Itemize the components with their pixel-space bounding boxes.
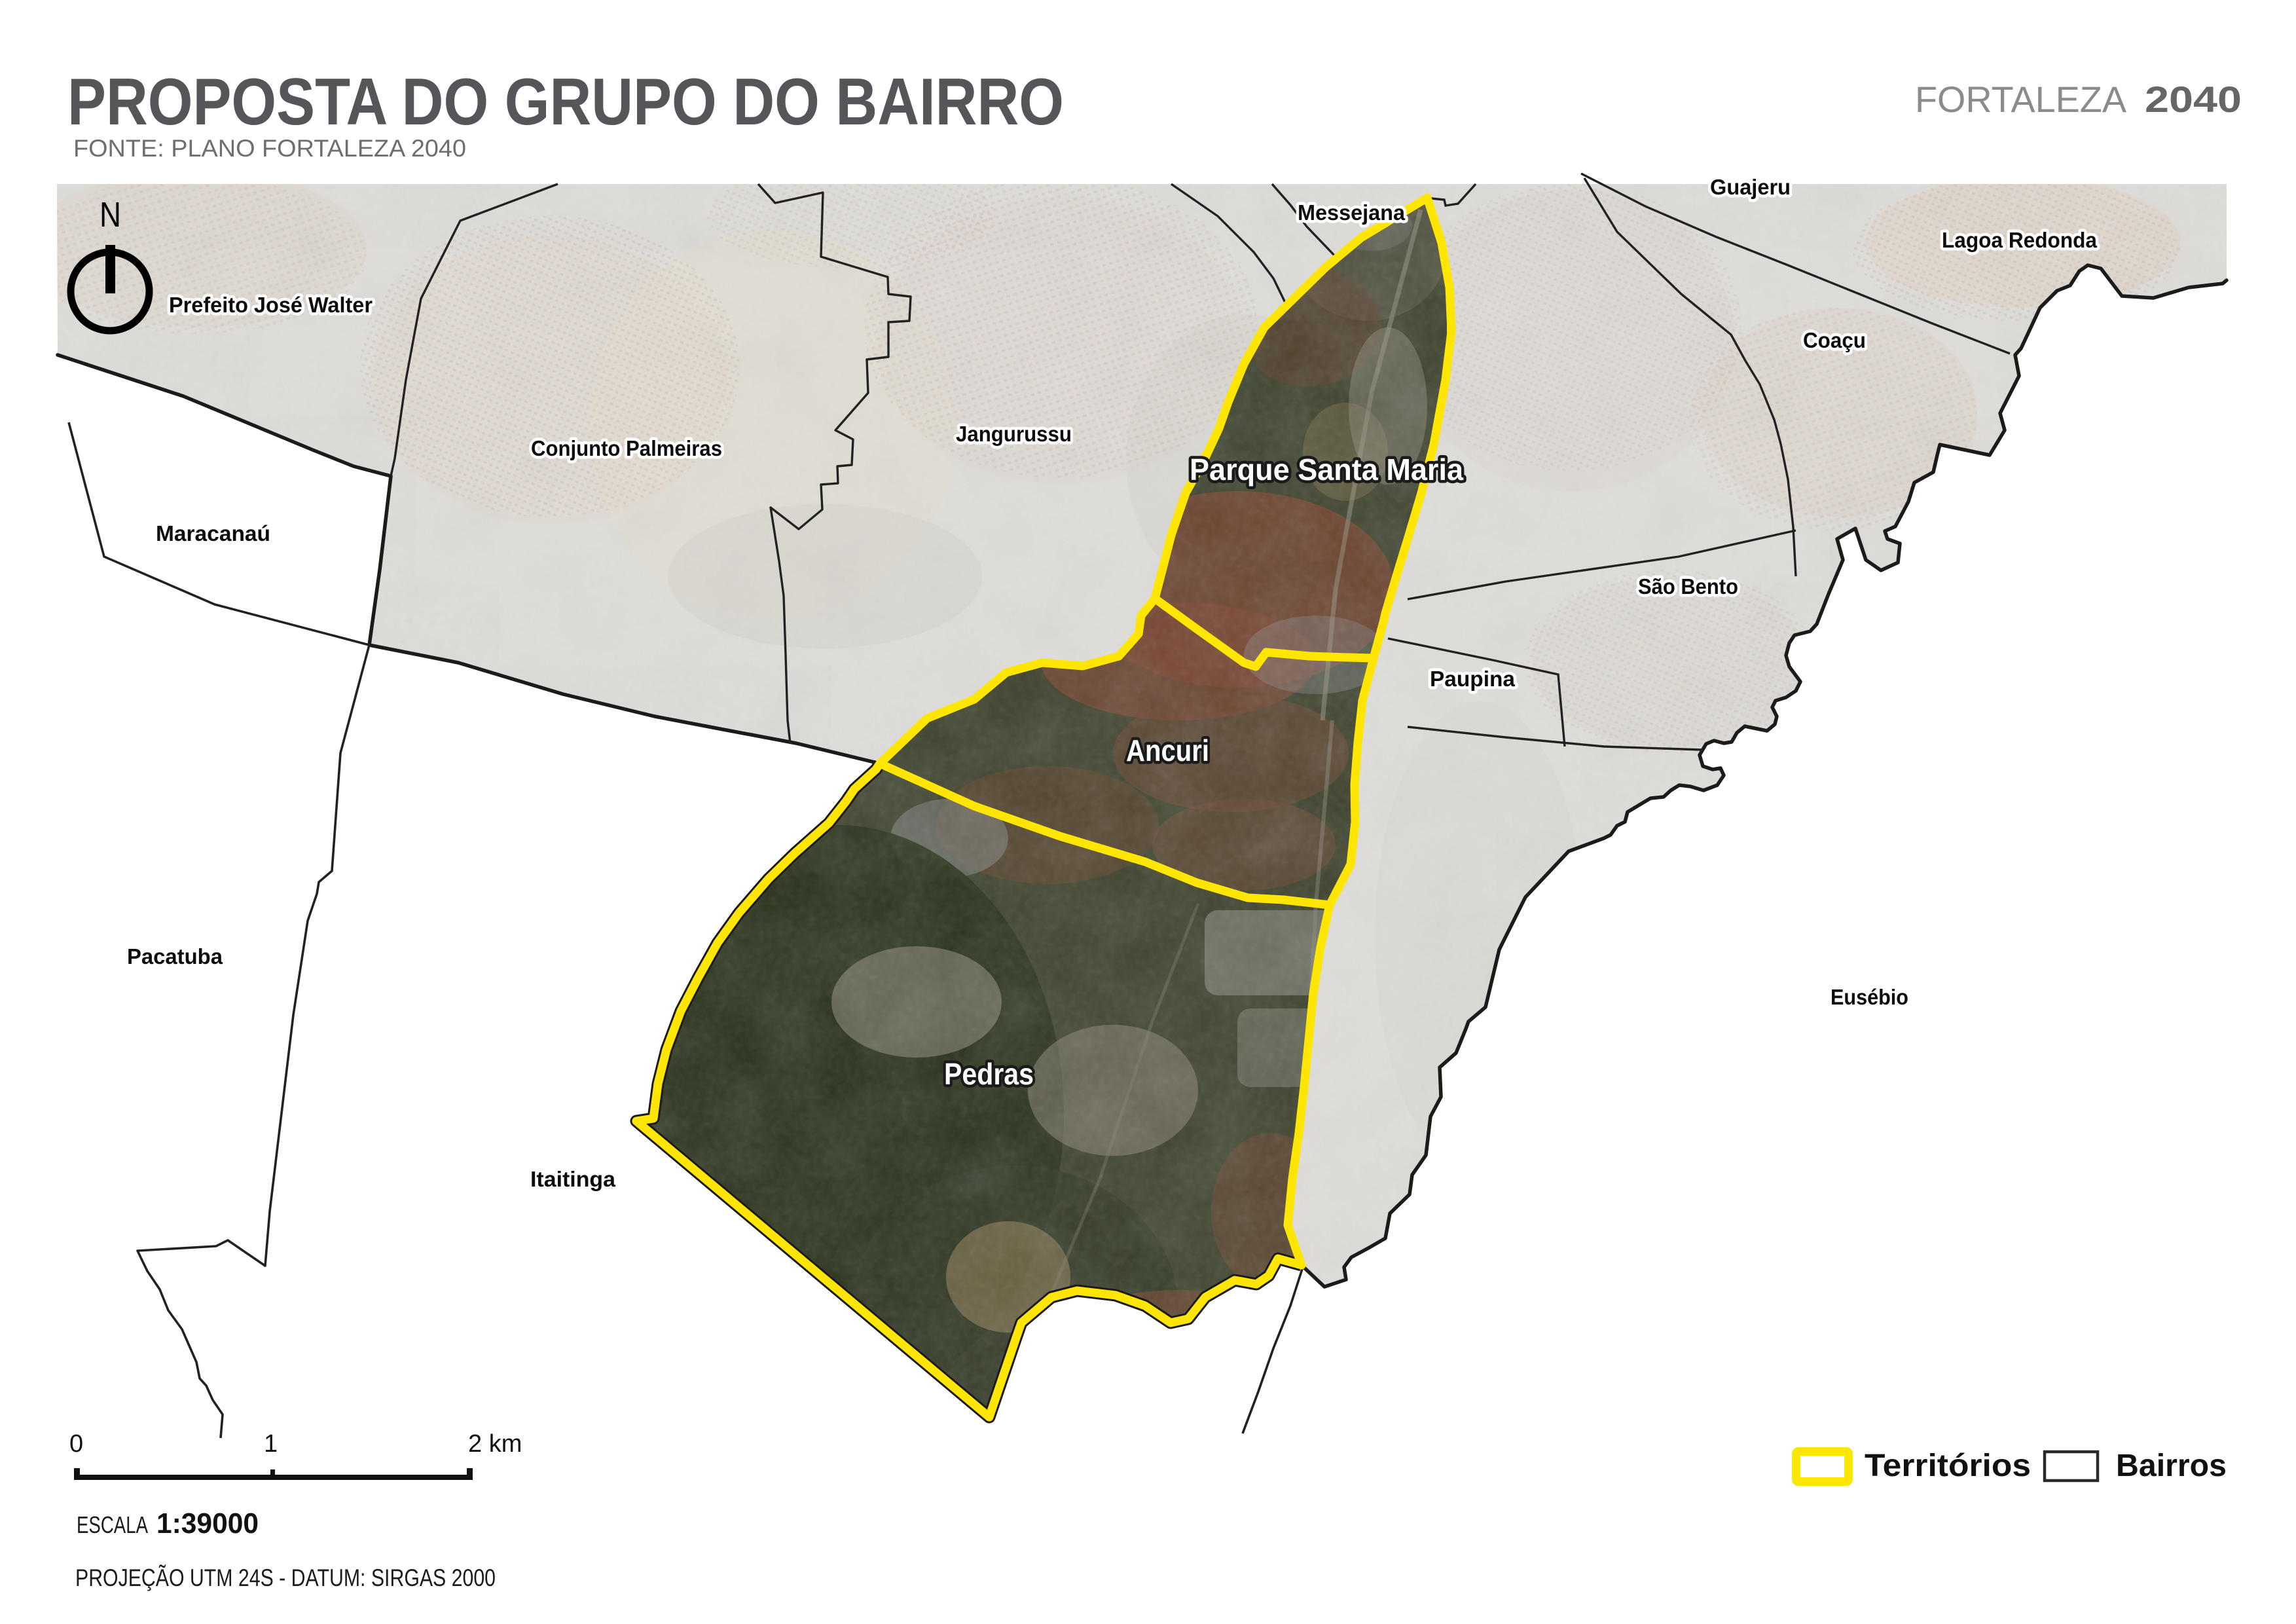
svg-text:Territórios: Territórios bbox=[1865, 1449, 2031, 1483]
svg-text:Parque Santa Maria: Parque Santa Maria bbox=[1190, 452, 1463, 487]
svg-text:Conjunto Palmeiras: Conjunto Palmeiras bbox=[531, 436, 722, 460]
svg-text:Pacatuba: Pacatuba bbox=[127, 944, 223, 969]
svg-text:ESCALA: ESCALA bbox=[77, 1511, 148, 1538]
svg-text:2040: 2040 bbox=[2145, 79, 2242, 120]
svg-text:Pedras: Pedras bbox=[944, 1057, 1034, 1091]
svg-text:Guajeru: Guajeru bbox=[1710, 175, 1791, 199]
svg-text:Bairros: Bairros bbox=[2116, 1449, 2227, 1483]
svg-text:PROJEÇÃO UTM 24S - DATUM: SIRG: PROJEÇÃO UTM 24S - DATUM: SIRGAS 2000 bbox=[75, 1564, 496, 1591]
svg-text:PROPOSTA DO GRUPO DO BAIRRO: PROPOSTA DO GRUPO DO BAIRRO bbox=[67, 65, 1064, 139]
svg-text:Prefeito José Walter: Prefeito José Walter bbox=[169, 293, 373, 317]
svg-text:Jangurussu: Jangurussu bbox=[956, 422, 1072, 446]
svg-text:Maracanaú: Maracanaú bbox=[156, 521, 270, 545]
svg-text:Paupina: Paupina bbox=[1430, 667, 1516, 691]
svg-text:Messejana: Messejana bbox=[1298, 200, 1406, 225]
svg-text:Lagoa Redonda: Lagoa Redonda bbox=[1942, 228, 2098, 252]
svg-text:1:39000: 1:39000 bbox=[156, 1507, 259, 1540]
svg-text:Itaitinga: Itaitinga bbox=[530, 1167, 616, 1191]
svg-text:N: N bbox=[100, 195, 121, 234]
svg-text:Coaçu: Coaçu bbox=[1803, 328, 1866, 352]
svg-text:São Bento: São Bento bbox=[1638, 574, 1738, 599]
svg-text:1: 1 bbox=[264, 1430, 278, 1458]
svg-text:Eusébio: Eusébio bbox=[1831, 985, 1908, 1009]
svg-text:FORTALEZA: FORTALEZA bbox=[1915, 79, 2127, 120]
svg-text:FONTE: PLANO FORTALEZA 2040: FONTE: PLANO FORTALEZA 2040 bbox=[73, 135, 466, 162]
svg-text:0: 0 bbox=[69, 1430, 83, 1458]
svg-text:Ancuri: Ancuri bbox=[1126, 733, 1209, 767]
svg-text:2 km: 2 km bbox=[468, 1430, 522, 1458]
